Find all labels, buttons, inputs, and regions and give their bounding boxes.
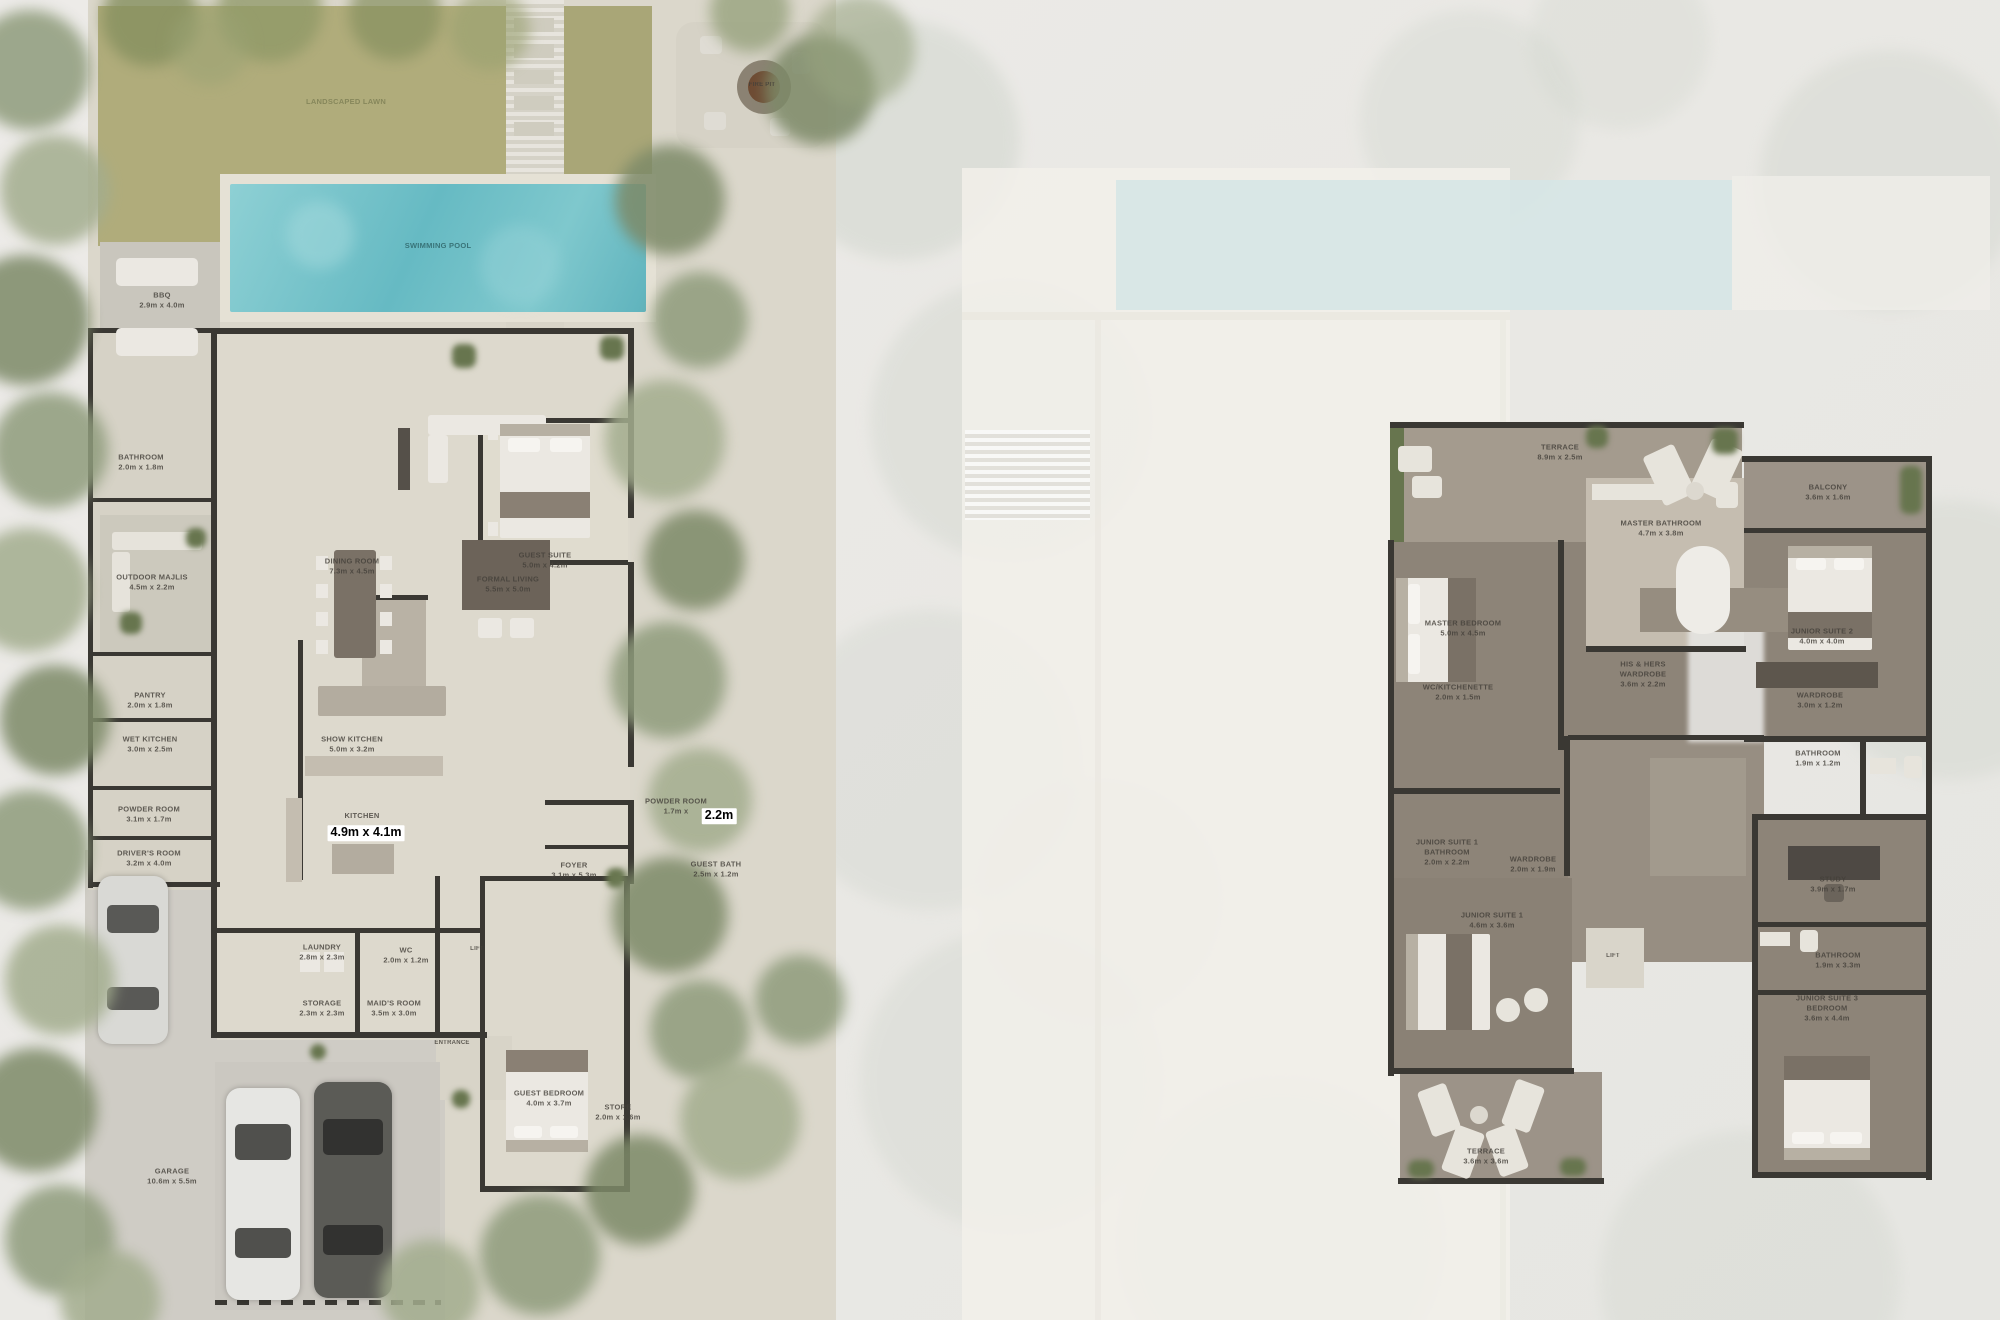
wall	[211, 1032, 487, 1038]
stepping-stone	[514, 70, 554, 84]
tree-icon	[5, 925, 115, 1035]
wardrobe	[1756, 662, 1878, 688]
wall	[1742, 456, 1932, 462]
tree-icon	[286, 201, 354, 269]
bed-throw	[506, 1050, 588, 1072]
dining-chair	[316, 584, 328, 598]
tree-icon	[755, 955, 845, 1045]
dining-chair	[316, 612, 328, 626]
laundry-appliance	[324, 952, 344, 972]
nightstand	[488, 426, 498, 440]
tree-icon	[652, 272, 748, 368]
bed-headboard	[1788, 546, 1872, 558]
staircase	[1650, 758, 1746, 876]
dining-chair	[380, 584, 392, 598]
bed-headboard	[1396, 578, 1408, 682]
ghost-line	[962, 312, 1510, 320]
planter-icon	[186, 528, 206, 548]
bed-throw	[1788, 612, 1872, 638]
car-garage-white-rear-window	[235, 1228, 291, 1258]
planter-icon	[1586, 426, 1608, 448]
tree-icon	[805, 0, 915, 105]
tv-console	[398, 428, 410, 490]
wall	[211, 328, 632, 334]
ghost-deck	[1732, 176, 1990, 310]
bed-headboard	[506, 1140, 588, 1152]
dining-chair	[316, 556, 328, 570]
sun-lounger	[116, 258, 198, 286]
wall	[1564, 736, 1570, 876]
car-garage-white-windshield	[235, 1124, 291, 1160]
tree-icon	[605, 380, 725, 500]
tree-icon	[0, 528, 90, 652]
car-driveway-rear-window	[107, 987, 159, 1011]
tree-icon	[680, 1060, 800, 1180]
tree-icon	[0, 135, 110, 245]
room-label: BATHROOM 1.9m x 1.2m	[1795, 748, 1841, 768]
car-garage-white	[226, 1088, 300, 1300]
bed-throw	[1446, 934, 1472, 1030]
outdoor-chair	[704, 112, 726, 130]
wall	[1586, 646, 1746, 652]
tree-icon	[645, 510, 745, 610]
kitchen-counter	[305, 756, 443, 776]
planter-icon	[600, 336, 624, 360]
wall	[1390, 422, 1744, 428]
terrace-sofa	[1398, 446, 1432, 472]
kitchen-island	[318, 686, 446, 716]
wall	[1388, 876, 1394, 1076]
wall	[478, 418, 483, 560]
planter-icon	[452, 344, 476, 368]
car-garage-dark-windshield	[323, 1119, 383, 1156]
car-garage-dark-rear-window	[323, 1225, 383, 1255]
nightstand	[488, 522, 498, 536]
outdoor-chair	[700, 36, 722, 54]
wall	[1752, 990, 1928, 995]
wall	[1752, 814, 1758, 1178]
pillow	[514, 1126, 542, 1138]
tree-icon	[610, 622, 726, 738]
wall	[1568, 735, 1764, 740]
wall	[1752, 1172, 1932, 1178]
dining-chair	[380, 556, 392, 570]
terrace-planter	[1390, 424, 1404, 542]
bath-vanity	[1870, 758, 1896, 774]
sofa	[428, 435, 448, 483]
pillow	[550, 1126, 578, 1138]
dining-table	[334, 550, 376, 658]
wall	[1744, 736, 1932, 742]
pillow	[1408, 584, 1420, 624]
ghost-pool	[1116, 180, 1732, 310]
lounge-chair	[1524, 988, 1548, 1012]
wall	[90, 498, 215, 502]
lounge-chair	[1496, 998, 1520, 1022]
wall	[355, 928, 360, 1033]
pillow	[1796, 558, 1826, 570]
wall	[1752, 814, 1928, 820]
floor-plan-canvas: LANDSCAPED LAWNFIRE PITBBQ 2.9m x 4.0mSW…	[0, 0, 2000, 1320]
wall	[545, 845, 630, 849]
pillow	[1792, 1132, 1824, 1144]
planter-icon	[1560, 1158, 1586, 1176]
planter-icon	[1408, 1160, 1434, 1178]
bed-headboard	[1406, 934, 1418, 1030]
toilet	[1716, 482, 1738, 508]
planter-icon	[452, 1090, 470, 1108]
toilet	[1800, 930, 1818, 952]
kitchen-counter	[286, 798, 302, 882]
wall	[90, 786, 215, 790]
desk-chair	[1824, 884, 1844, 902]
majlis-sofa	[112, 552, 130, 612]
pillow	[1408, 634, 1420, 674]
planter-icon	[310, 1044, 326, 1060]
pillow	[1834, 558, 1864, 570]
tree-icon	[0, 665, 110, 775]
planter-icon	[120, 612, 142, 634]
tree-icon	[612, 857, 728, 973]
stepping-stone	[514, 122, 554, 136]
armchair	[510, 618, 534, 638]
car-driveway-windshield	[107, 905, 159, 934]
tree-icon	[0, 790, 90, 910]
wall	[1398, 1178, 1604, 1184]
study-desk	[1788, 846, 1880, 880]
wall	[1390, 1068, 1574, 1074]
planter-icon	[1712, 428, 1738, 454]
pillow	[1830, 1132, 1862, 1144]
wall	[90, 836, 215, 840]
tree-icon	[0, 1048, 97, 1172]
terrace-table	[1686, 482, 1704, 500]
tree-icon	[648, 748, 752, 852]
armchair	[478, 618, 502, 638]
sun-lounger	[116, 328, 198, 356]
dining-chair	[380, 640, 392, 654]
bathtub	[1676, 546, 1730, 634]
terrace-table	[1470, 1106, 1488, 1124]
wall	[545, 800, 630, 805]
tree-icon	[585, 1135, 695, 1245]
bath-vanity	[1760, 932, 1790, 946]
tree-icon	[0, 255, 90, 385]
wall	[90, 652, 215, 656]
laundry-appliance	[300, 952, 320, 972]
ghost-louvre-roof	[965, 430, 1090, 520]
wall	[1558, 540, 1564, 750]
car-garage-dark	[314, 1082, 392, 1298]
tree-icon	[615, 145, 725, 255]
wall	[435, 876, 440, 1036]
pillow	[550, 438, 582, 452]
living-room-rug	[462, 540, 550, 610]
stepping-stone	[514, 96, 554, 110]
kitchen-island	[332, 844, 394, 874]
wall	[1390, 788, 1560, 794]
lift-cab	[1586, 928, 1644, 988]
tree-icon	[0, 10, 90, 130]
wall	[480, 876, 485, 1192]
toilet	[1904, 756, 1922, 778]
bed-throw	[1784, 1056, 1870, 1080]
pillow	[508, 438, 540, 452]
dining-chair	[380, 612, 392, 626]
wall	[1744, 528, 1930, 533]
entrance-path	[436, 1036, 512, 1100]
dimension-annotation: 4.9m x 4.1m	[328, 825, 405, 841]
dimension-annotation: 2.2m	[702, 808, 737, 824]
ghost-line	[1095, 320, 1101, 1320]
terrace-sofa	[1412, 476, 1442, 498]
wall	[1752, 922, 1928, 927]
wall	[1860, 740, 1866, 816]
bed-headboard	[1784, 1148, 1870, 1160]
bed-throw	[1448, 578, 1476, 682]
bed-headboard	[500, 424, 590, 436]
planter-icon	[1900, 466, 1922, 514]
bath-vanity	[1592, 484, 1668, 500]
wall	[211, 928, 483, 933]
tree-icon	[170, 5, 250, 85]
bed-throw	[500, 492, 590, 518]
tree-icon	[480, 1195, 600, 1315]
tree-icon	[480, 225, 560, 305]
dining-chair	[316, 640, 328, 654]
